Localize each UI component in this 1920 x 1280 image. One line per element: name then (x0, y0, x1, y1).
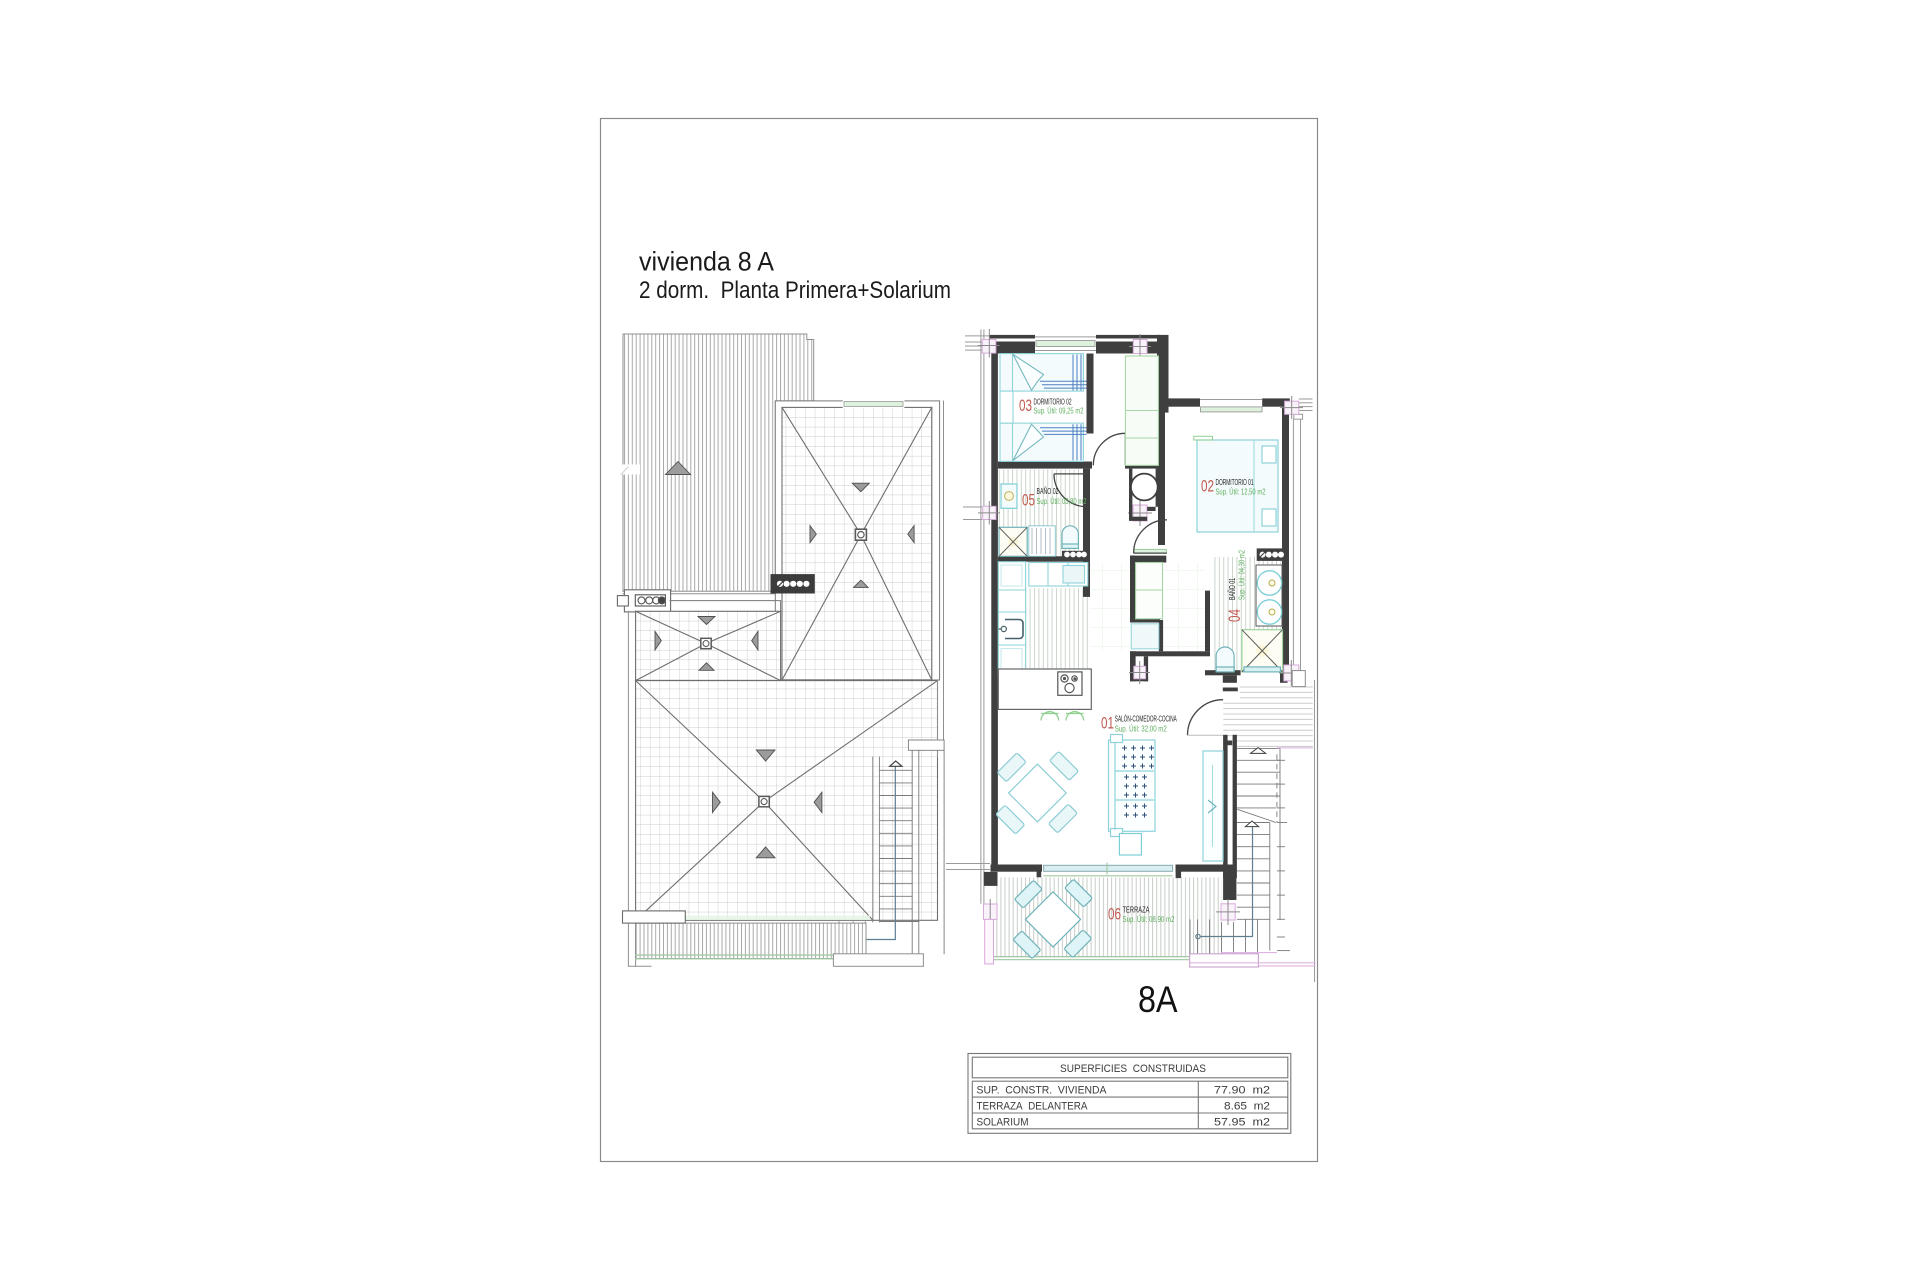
svg-text:BAÑO 01: BAÑO 01 (1227, 578, 1237, 600)
svg-text:Sup. Útil: 12,50 m2: Sup. Útil: 12,50 m2 (1216, 487, 1266, 496)
svg-text:2 dorm. Planta Primera+Solari: 2 dorm. Planta Primera+Solarium (639, 277, 951, 304)
svg-text:Sup. Útil: 09,25 m2: Sup. Útil: 09,25 m2 (1034, 406, 1084, 415)
svg-text:vivienda 8 A: vivienda 8 A (639, 247, 774, 277)
svg-text:Sup. Útil: 08,90 m2: Sup. Útil: 08,90 m2 (1123, 915, 1175, 924)
svg-text:DORMITORIO 01: DORMITORIO 01 (1216, 477, 1254, 487)
svg-text:8A: 8A (1138, 979, 1178, 1020)
svg-text:05: 05 (1022, 492, 1035, 510)
svg-text:TERRAZA DELANTERA: TERRAZA DELANTERA (977, 1101, 1088, 1113)
svg-text:SUPERFICIES CONSTRUIDAS: SUPERFICIES CONSTRUIDAS (1060, 1063, 1206, 1075)
svg-text:Sup. Útil: 04,30 m2: Sup. Útil: 04,30 m2 (1238, 550, 1247, 600)
svg-text:06: 06 (1108, 906, 1121, 924)
svg-text:02: 02 (1201, 478, 1214, 496)
svg-text:TERRAZA: TERRAZA (1123, 905, 1150, 915)
svg-text:SALÓN-COMEDOR-COCINA: SALÓN-COMEDOR-COCINA (1115, 714, 1177, 724)
svg-text:57.95 m2: 57.95 m2 (1214, 1116, 1270, 1128)
svg-text:SOLARIUM: SOLARIUM (977, 1116, 1029, 1128)
svg-text:BAÑO 02: BAÑO 02 (1037, 486, 1059, 496)
svg-text:Sup. Útil: 32,00 m2: Sup. Útil: 32,00 m2 (1115, 725, 1167, 734)
svg-text:77.90 m2: 77.90 m2 (1214, 1085, 1270, 1097)
svg-text:01: 01 (1101, 715, 1114, 733)
svg-text:8.65 m2: 8.65 m2 (1224, 1101, 1270, 1113)
svg-text:03: 03 (1019, 397, 1032, 415)
svg-text:DORMITORIO 02: DORMITORIO 02 (1034, 397, 1072, 407)
svg-text:Sup. Útil: 03,80 m2: Sup. Útil: 03,80 m2 (1037, 497, 1087, 506)
svg-text:04: 04 (1226, 609, 1244, 622)
svg-text:SUP. CONSTR. VIVIENDA: SUP. CONSTR. VIVIENDA (977, 1085, 1107, 1097)
